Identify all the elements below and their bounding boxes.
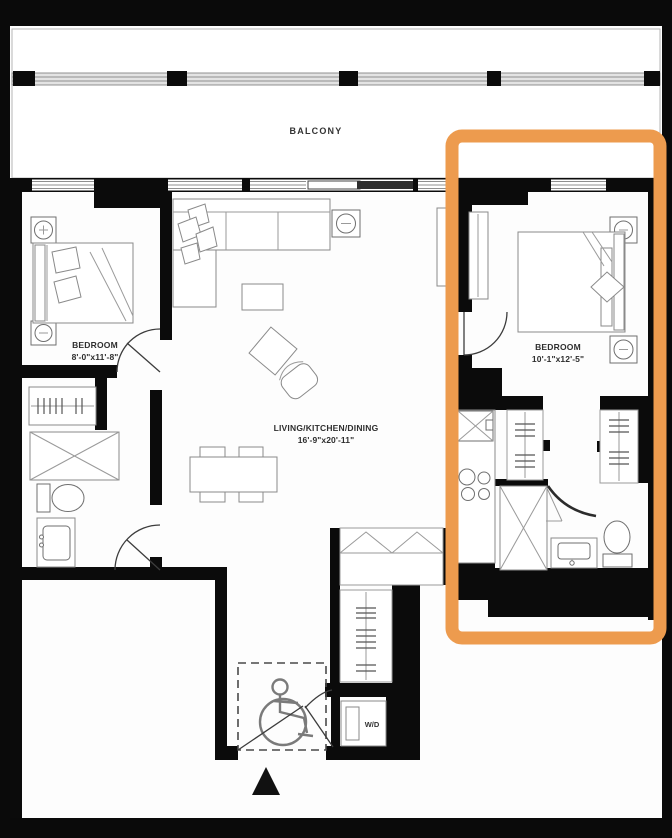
toilet [603,521,632,567]
balcony-railing [12,73,660,85]
balcony-label: BALCONY [290,126,343,136]
living-label: LIVING/KITCHEN/DINING [274,423,379,433]
entry-marker-triangle [252,767,280,795]
dining-table [190,447,277,502]
bedroom-right: BEDROOM 10'-1"x12'-5" [464,212,637,364]
exterior-wall-top [12,178,660,192]
bifold-closet [340,528,443,585]
bedroom-right-dims: 10'-1"x12'-5" [532,354,584,364]
entry [238,663,333,795]
bathroom-right [500,486,632,570]
bedroom-right-label: BEDROOM [535,342,581,352]
window-living-3 [418,180,446,191]
bed-double [33,243,133,323]
washer-dryer-label: W/D [365,720,380,729]
door-swing [464,312,507,355]
balcony: BALCONY [12,29,660,178]
closet-right-2 [600,410,638,483]
window-living-1 [168,180,242,191]
closet-left [29,387,96,425]
sink-vanity [551,538,597,568]
bedroom-left-label: BEDROOM [72,340,118,350]
kitchen-sink [458,411,493,441]
washer-dryer: W/D [341,701,386,746]
ceiling-fixture-icon [332,210,360,237]
window-living-2 [250,180,306,191]
bed-double [518,232,625,332]
ceiling-fixture-icon [610,336,637,363]
window-bedroom-right [551,180,606,191]
floor-plan: BALCONY [0,0,672,838]
window-bedroom-left [32,180,94,191]
living-dining: LIVING/KITCHEN/DINING 16'-9"x20'-11" [173,199,451,502]
bathroom-left [30,432,160,570]
wheelchair-accessible-icon [260,680,313,746]
ceiling-fixture-icon [31,321,56,345]
entry-door-leaf [305,706,333,747]
closet-right-1 [507,410,543,480]
ceiling-fixture-icon [31,217,56,243]
bedroom-left: BEDROOM 8'-0"x11'-8" [31,217,160,372]
living-dims: 16'-9"x20'-11" [298,435,355,445]
side-table [249,327,297,375]
rod-closet [340,590,392,682]
sink-vanity [37,518,75,567]
floor-plan-page: BALCONY [0,0,672,838]
balcony-sliding-door [306,180,413,191]
coffee-table [242,284,283,310]
bathtub [30,432,119,480]
door-swing [548,486,596,516]
toilet [37,484,84,512]
bedroom-left-dims: 8'-0"x11'-8" [72,352,119,362]
